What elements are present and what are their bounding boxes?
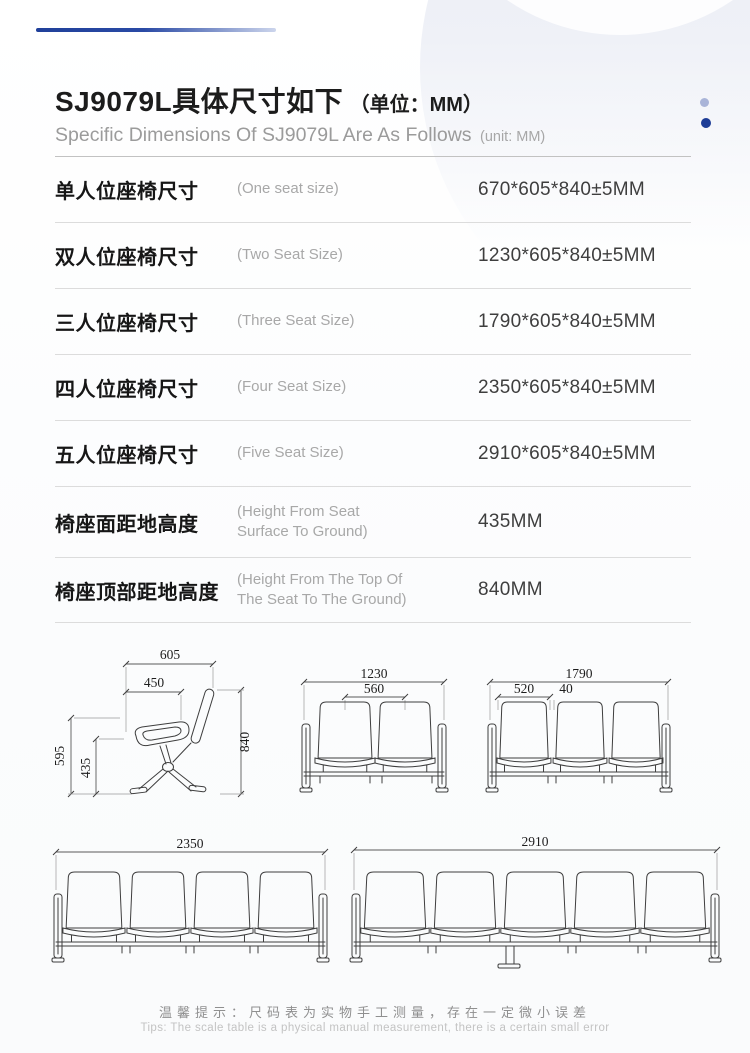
dim-top-width: 605: [160, 647, 181, 662]
dim-gap: 40: [559, 681, 573, 696]
row-label-en: (Height From Seat Surface To Ground): [237, 502, 478, 543]
dim-seat-width: 520: [514, 681, 535, 696]
dimension-lines: 2910: [351, 834, 720, 890]
dim-back-height: 595: [52, 746, 67, 767]
row-label-en: (Three Seat Size): [237, 311, 478, 331]
row-label-zh: 五人位座椅尺寸: [55, 439, 237, 468]
row-value: 2350*605*840±5MM: [478, 377, 656, 399]
row-value: 840MM: [478, 579, 543, 601]
row-value: 670*605*840±5MM: [478, 179, 645, 201]
row-label-zh: 单人位座椅尺寸: [55, 175, 237, 204]
dim-total-width: 1230: [361, 666, 388, 681]
accent-gradient-bar: [36, 28, 276, 32]
table-row: 三人位座椅尺寸 (Three Seat Size) 1790*605*840±5…: [55, 289, 691, 355]
dim-total-width: 2350: [177, 836, 204, 851]
row-label-zh: 三人位座椅尺寸: [55, 307, 237, 336]
footer-tip-zh: 温馨提示：尺码表为实物手工测量，存在一定微小误差: [0, 1002, 750, 1021]
row-label-zh: 四人位座椅尺寸: [55, 373, 237, 402]
dim-seat-height: 435: [78, 758, 93, 779]
bench-outline: [350, 872, 721, 968]
dimension-lines: 2350: [53, 836, 328, 890]
single-seat-side-drawing: 605 450 840 595 435: [40, 646, 275, 811]
row-value: 2910*605*840±5MM: [478, 443, 656, 465]
row-label-en: (Two Seat Size): [237, 245, 478, 265]
page-title: SJ9079L具体尺寸如下 （单位：MM）: [55, 80, 483, 120]
row-label-zh: 椅座面距地高度: [55, 508, 237, 537]
decor-dot-dark: [701, 118, 711, 128]
table-row: 双人位座椅尺寸 (Two Seat Size) 1230*605*840±5MM: [55, 223, 691, 289]
subtitle-unit: (unit: MM): [480, 129, 545, 145]
row-value: 435MM: [478, 511, 543, 533]
table-row: 五人位座椅尺寸 (Five Seat Size) 2910*605*840±5M…: [55, 421, 691, 487]
page-subtitle: Specific Dimensions Of SJ9079L Are As Fo…: [55, 124, 545, 147]
subtitle-en: Specific Dimensions Of SJ9079L Are As Fo…: [55, 124, 472, 146]
row-label-en: (Four Seat Size): [237, 377, 478, 397]
center-leg: [498, 946, 520, 968]
title-zh: SJ9079L具体尺寸如下: [55, 86, 343, 117]
dim-total-height: 840: [237, 732, 252, 753]
row-value: 1790*605*840±5MM: [478, 311, 656, 333]
bench-outline: [486, 702, 672, 792]
three-seat-front-drawing: 1790 520 40: [486, 666, 672, 808]
spec-sheet-page: SJ9079L具体尺寸如下 （单位：MM） Specific Dimension…: [0, 0, 750, 1053]
chair-outline: [130, 688, 215, 794]
spec-table: 单人位座椅尺寸 (One seat size) 670*605*840±5MM …: [55, 157, 691, 623]
row-label-en: (One seat size): [237, 179, 478, 199]
table-row: 椅座顶部距地高度 (Height From The Top Of The Sea…: [55, 558, 691, 623]
dimension-lines: 1230 560: [301, 666, 447, 720]
two-seat-front-drawing: 1230 560: [290, 666, 458, 808]
dim-seat-pitch: 560: [364, 681, 385, 696]
footer-tip-en: Tips: The scale table is a physical manu…: [0, 1022, 750, 1034]
bench-outline: [52, 872, 329, 962]
decor-dot-light: [700, 98, 709, 107]
dim-seat-depth: 450: [144, 675, 165, 690]
dimension-lines: 605 450 840 595 435: [52, 647, 252, 797]
table-row: 单人位座椅尺寸 (One seat size) 670*605*840±5MM: [55, 157, 691, 223]
bench-outline: [300, 702, 448, 792]
table-row: 椅座面距地高度 (Height From Seat Surface To Gro…: [55, 487, 691, 558]
row-label-zh: 双人位座椅尺寸: [55, 241, 237, 270]
four-seat-front-drawing: 2350: [48, 836, 333, 978]
row-label-en: (Height From The Top Of The Seat To The …: [237, 570, 478, 611]
row-label-zh: 椅座顶部距地高度: [55, 576, 237, 605]
title-unit: （单位：MM）: [350, 94, 483, 116]
row-value: 1230*605*840±5MM: [478, 245, 656, 267]
row-label-en: (Five Seat Size): [237, 443, 478, 463]
dim-total-width: 2910: [522, 834, 549, 849]
five-seat-front-drawing: 2910: [348, 836, 723, 978]
dim-total-width: 1790: [566, 666, 593, 681]
dimension-lines: 1790 520 40: [487, 666, 671, 720]
table-row: 四人位座椅尺寸 (Four Seat Size) 2350*605*840±5M…: [55, 355, 691, 421]
